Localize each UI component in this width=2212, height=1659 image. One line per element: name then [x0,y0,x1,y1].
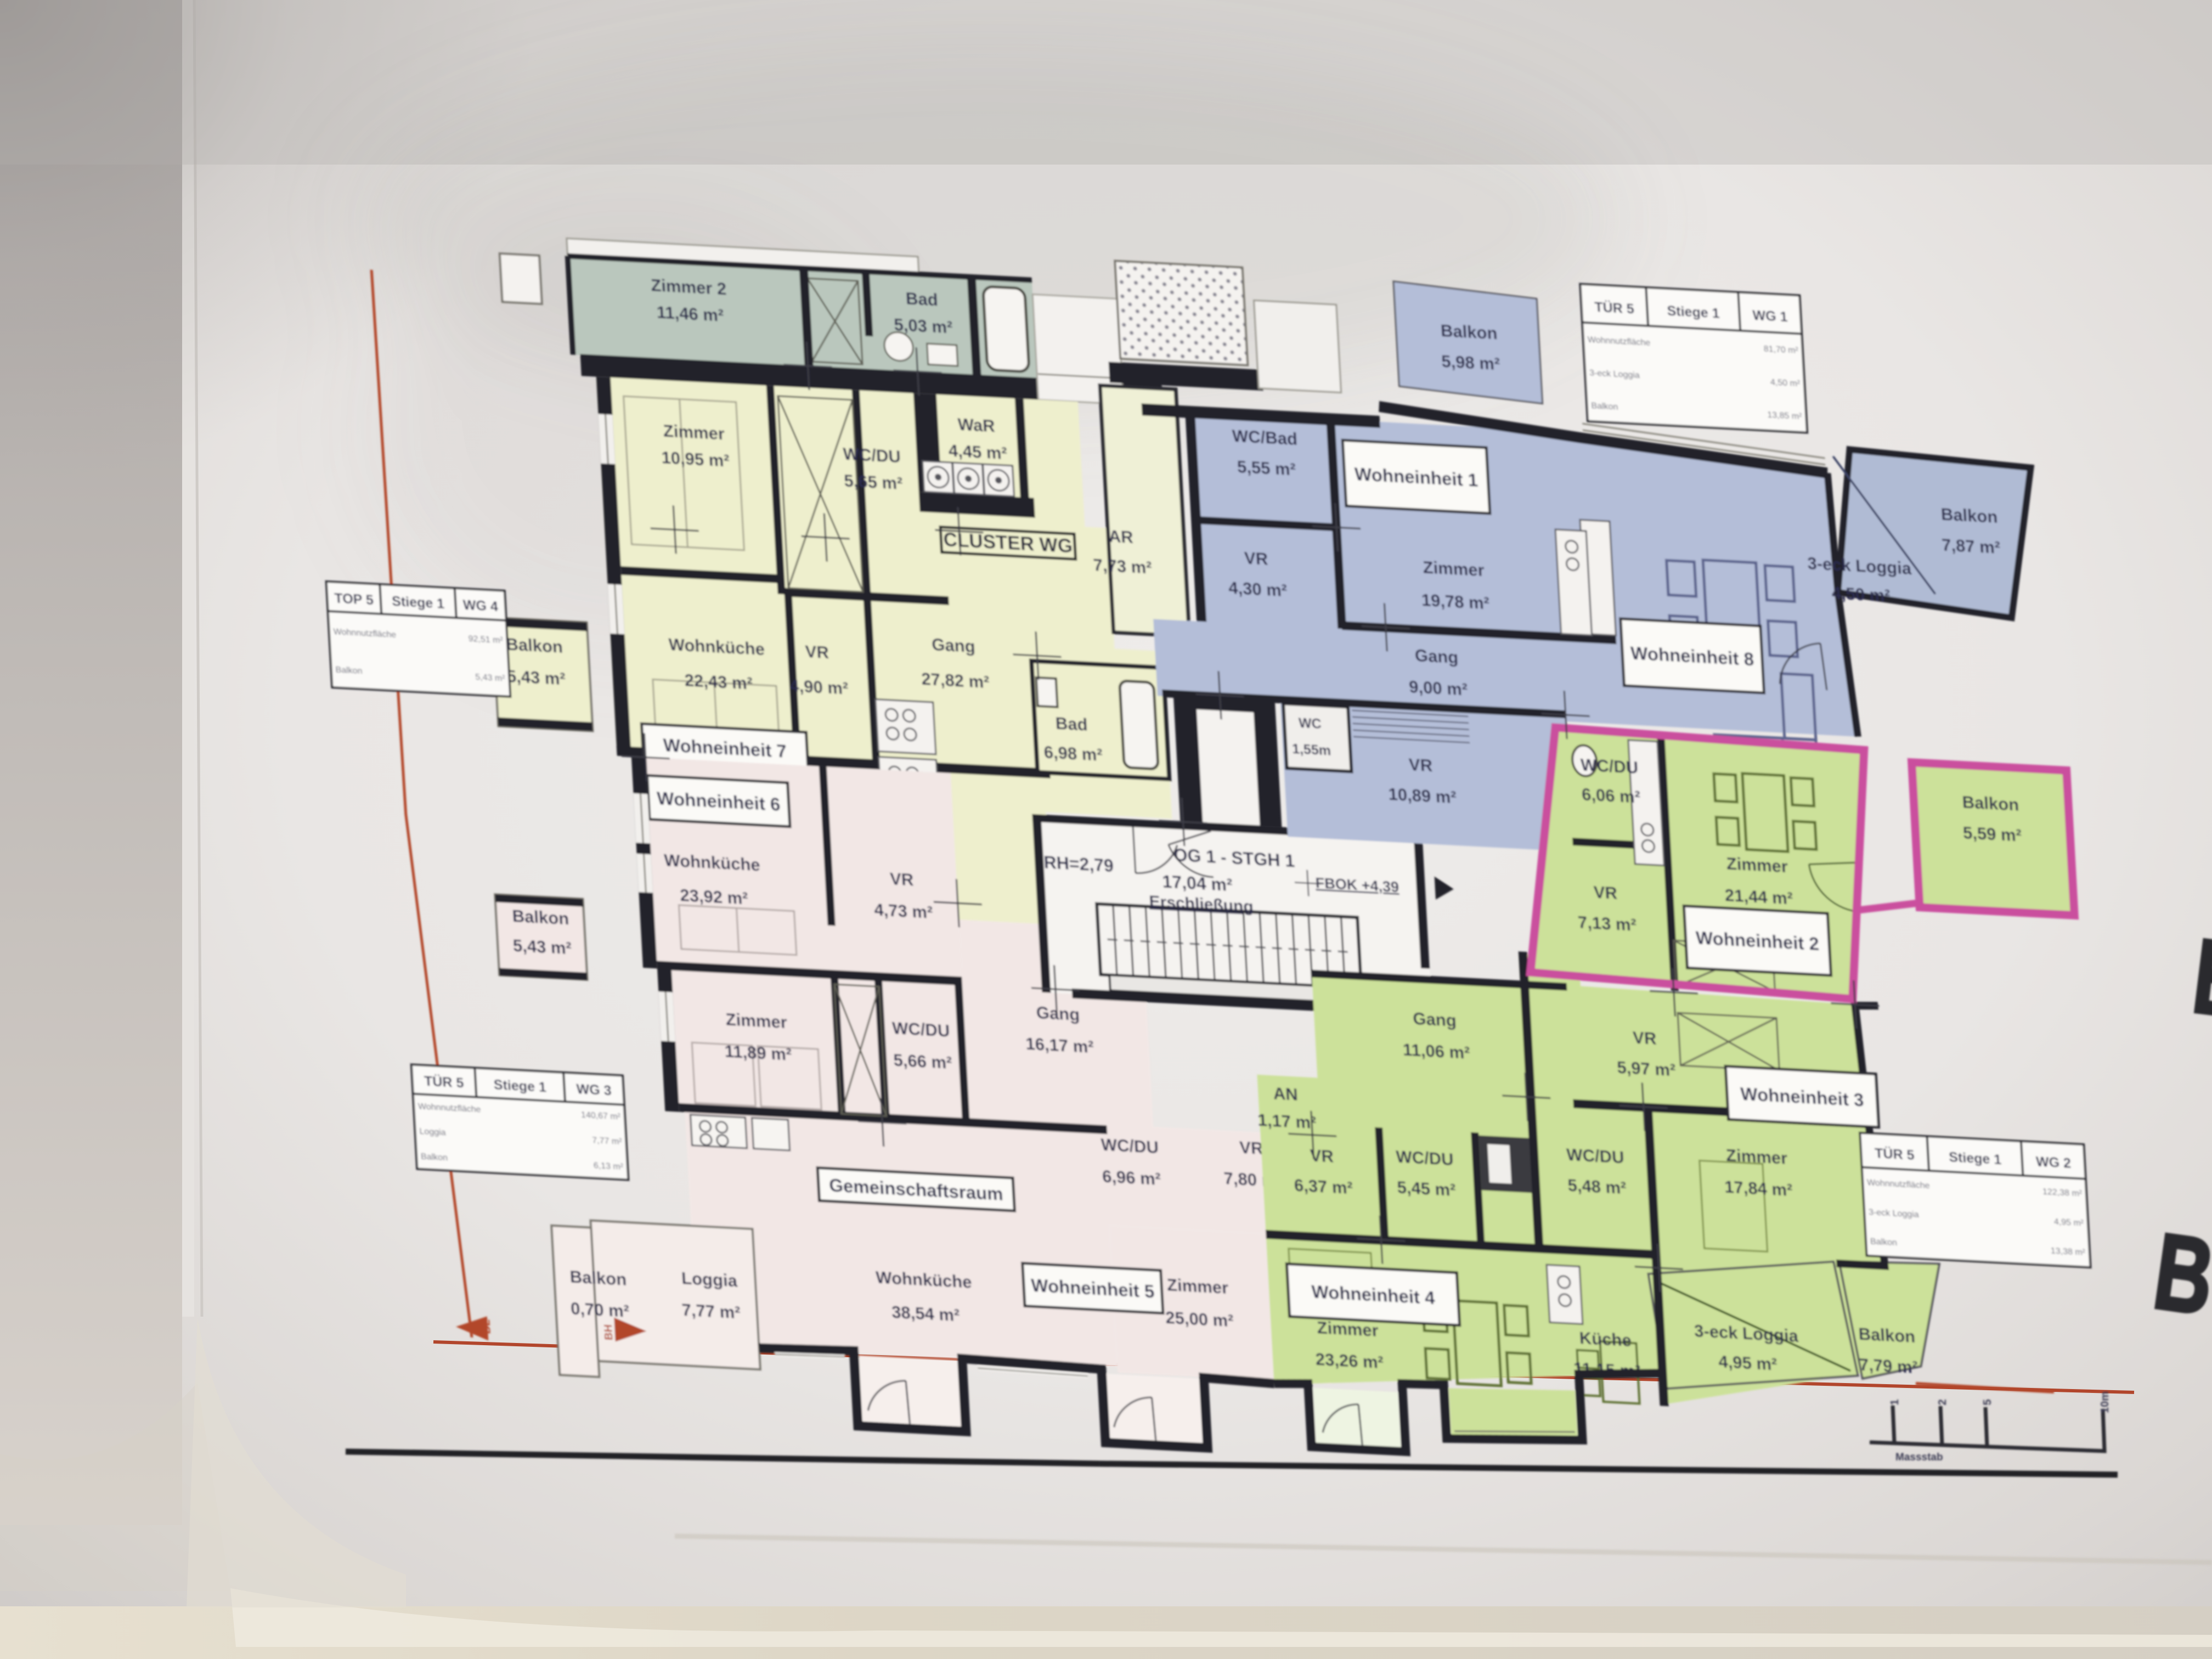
svg-text:23,26 m²: 23,26 m² [1315,1350,1384,1372]
svg-text:VR: VR [1239,1138,1263,1158]
svg-text:Balkon: Balkon [506,635,563,657]
svg-text:WC/DU: WC/DU [1580,755,1639,777]
svg-text:5,59 m²: 5,59 m² [1962,823,2022,845]
svg-text:VR: VR [805,642,830,662]
svg-text:WG 2: WG 2 [2035,1154,2071,1171]
svg-text:Balkon: Balkon [569,1267,627,1289]
svg-text:Zimmer: Zimmer [725,1010,788,1032]
svg-text:Balkon: Balkon [1440,321,1498,343]
svg-text:Stiege 1: Stiege 1 [493,1077,546,1096]
svg-text:Zimmer 2: Zimmer 2 [650,275,727,298]
svg-text:5,43 m²: 5,43 m² [506,667,566,689]
svg-text:AR: AR [1108,527,1134,547]
svg-text:Stiege 1: Stiege 1 [1949,1149,2002,1167]
svg-text:5,55 m²: 5,55 m² [1237,457,1296,479]
svg-text:Balkon: Balkon [421,1152,448,1163]
svg-text:TÜR 5: TÜR 5 [1874,1145,1915,1163]
svg-text:Balkon: Balkon [1858,1324,1916,1346]
svg-text:2: 2 [1937,1399,1949,1405]
svg-text:5,43 m²: 5,43 m² [512,936,572,958]
svg-text:5,45 m²: 5,45 m² [1397,1178,1457,1200]
svg-text:92,51 m²: 92,51 m² [468,634,504,645]
svg-text:140,67 m²: 140,67 m² [581,1110,622,1122]
svg-text:Gang: Gang [1414,646,1459,667]
svg-text:6,96 m²: 6,96 m² [1102,1167,1161,1189]
svg-text:Zimmer: Zimmer [663,421,725,444]
svg-text:WC: WC [1298,715,1322,732]
svg-text:5,66 m²: 5,66 m² [893,1050,953,1073]
svg-text:5,98 m²: 5,98 m² [1441,352,1500,374]
svg-text:4,95 m²: 4,95 m² [1718,1352,1778,1374]
svg-text:Balkon: Balkon [512,906,569,928]
svg-text:7,79 m²: 7,79 m² [1859,1355,1918,1378]
svg-text:Balkon: Balkon [1962,792,2019,814]
svg-text:WC/DU: WC/DU [843,444,901,466]
svg-text:TÜR 5: TÜR 5 [424,1073,464,1091]
svg-text:Bad: Bad [905,289,938,310]
svg-text:Zimmer: Zimmer [1725,1145,1788,1168]
svg-text:WC/DU: WC/DU [1566,1145,1624,1167]
svg-text:25,00 m²: 25,00 m² [1165,1308,1234,1330]
svg-text:BL: BL [480,1319,493,1334]
svg-text:4,30 m²: 4,30 m² [1228,578,1288,601]
svg-text:7,13 m²: 7,13 m² [1577,912,1637,935]
svg-text:21,44 m²: 21,44 m² [1724,885,1793,908]
svg-text:5,97 m²: 5,97 m² [1617,1058,1677,1080]
svg-text:WG 1: WG 1 [1752,308,1788,325]
svg-text:4,73 m²: 4,73 m² [874,900,934,922]
svg-text:5: 5 [1982,1399,1994,1405]
svg-text:Stiege 1: Stiege 1 [391,594,444,612]
svg-text:38,54 m²: 38,54 m² [891,1302,960,1325]
svg-text:VR: VR [1593,883,1618,903]
svg-text:WC/DU: WC/DU [1396,1147,1454,1169]
svg-text:Balkon: Balkon [1870,1237,1898,1248]
svg-text:1: 1 [1889,1399,1901,1405]
svg-text:WC/DU: WC/DU [1101,1135,1159,1157]
svg-text:4,50 m²: 4,50 m² [1831,583,1891,606]
svg-text:TOP 5: TOP 5 [334,591,374,608]
svg-text:WG 3: WG 3 [576,1081,612,1098]
svg-text:VR: VR [1632,1028,1657,1048]
svg-text:Gang: Gang [931,635,975,656]
svg-text:7,87 m²: 7,87 m² [1941,535,2001,558]
svg-text:10,89 m²: 10,89 m² [1388,785,1457,807]
svg-text:13,85 m²: 13,85 m² [1767,410,1803,421]
svg-text:Zimmer: Zimmer [1166,1275,1229,1297]
svg-text:11,06 m²: 11,06 m² [1402,1040,1470,1063]
svg-text:5,48 m²: 5,48 m² [1567,1176,1627,1198]
svg-text:4,50 m²: 4,50 m² [1770,377,1801,388]
svg-text:Gang: Gang [1412,1009,1457,1030]
svg-text:6,98 m²: 6,98 m² [1043,742,1103,765]
svg-text:BH: BH [602,1324,616,1340]
svg-text:11,46 m²: 11,46 m² [656,303,724,325]
svg-text:22,43 m²: 22,43 m² [684,671,753,693]
svg-text:Bad: Bad [1055,714,1088,735]
svg-text:Balkon: Balkon [1940,505,1998,527]
svg-text:VR: VR [1408,755,1433,775]
svg-text:TÜR 5: TÜR 5 [1594,299,1635,317]
svg-text:4,90 m²: 4,90 m² [789,676,849,699]
svg-text:1,17 m²: 1,17 m² [1257,1110,1317,1133]
svg-text:6,13 m²: 6,13 m² [593,1160,624,1172]
svg-text:10m: 10m [2099,1391,2111,1413]
svg-text:0,70 m²: 0,70 m² [570,1299,630,1321]
svg-text:10,95 m²: 10,95 m² [661,448,730,471]
svg-text:4,95 m²: 4,95 m² [2053,1217,2084,1228]
svg-text:Massstab: Massstab [1895,1452,1943,1463]
svg-text:Balkon: Balkon [1591,400,1618,412]
svg-text:17,04 m²: 17,04 m² [1162,872,1233,895]
svg-text:7,73 m²: 7,73 m² [1093,555,1153,578]
svg-text:AN: AN [1273,1084,1299,1104]
svg-text:Zimmer: Zimmer [1726,854,1788,877]
svg-text:81,70 m²: 81,70 m² [1763,344,1799,356]
svg-text:7,77 m²: 7,77 m² [681,1300,741,1323]
svg-text:WaR: WaR [957,415,996,436]
svg-text:122,38 m²: 122,38 m² [2042,1187,2083,1199]
svg-text:WG 4: WG 4 [462,597,498,614]
svg-text:Loggia: Loggia [419,1126,446,1137]
svg-text:4,45 m²: 4,45 m² [948,441,1008,464]
svg-text:1,55m: 1,55m [1291,741,1331,759]
svg-text:17,84 m²: 17,84 m² [1724,1177,1793,1200]
svg-text:Balkon: Balkon [335,665,363,676]
svg-text:27,82 m²: 27,82 m² [921,669,990,692]
svg-text:5,43 m²: 5,43 m² [475,672,506,684]
svg-text:Zimmer: Zimmer [1317,1318,1379,1340]
svg-text:Gang: Gang [1036,1003,1080,1024]
svg-text:13,38 m²: 13,38 m² [2050,1246,2086,1257]
svg-text:9,00 m²: 9,00 m² [1408,677,1468,699]
svg-text:23,92 m²: 23,92 m² [679,885,748,908]
svg-text:VR: VR [1244,548,1268,568]
svg-text:16,17 m²: 16,17 m² [1025,1034,1094,1057]
svg-text:VR: VR [889,869,914,889]
svg-text:6,37 m²: 6,37 m² [1294,1176,1353,1198]
svg-text:11,89 m²: 11,89 m² [724,1041,792,1064]
svg-text:WC/Bad: WC/Bad [1232,426,1298,449]
svg-text:5,03 m²: 5,03 m² [894,315,953,337]
svg-text:5,65 m²: 5,65 m² [844,471,904,494]
svg-text:19,78 m²: 19,78 m² [1421,590,1490,613]
svg-text:Zimmer: Zimmer [1423,557,1485,580]
svg-text:7,77 m²: 7,77 m² [592,1136,623,1147]
svg-text:Loggia: Loggia [681,1268,738,1290]
svg-text:WC/DU: WC/DU [891,1018,950,1040]
svg-text:RH=2,79: RH=2,79 [1043,853,1114,876]
svg-text:Küche: Küche [1579,1328,1632,1350]
svg-text:6,06 m²: 6,06 m² [1581,785,1641,807]
svg-text:Stiege 1: Stiege 1 [1667,303,1720,321]
